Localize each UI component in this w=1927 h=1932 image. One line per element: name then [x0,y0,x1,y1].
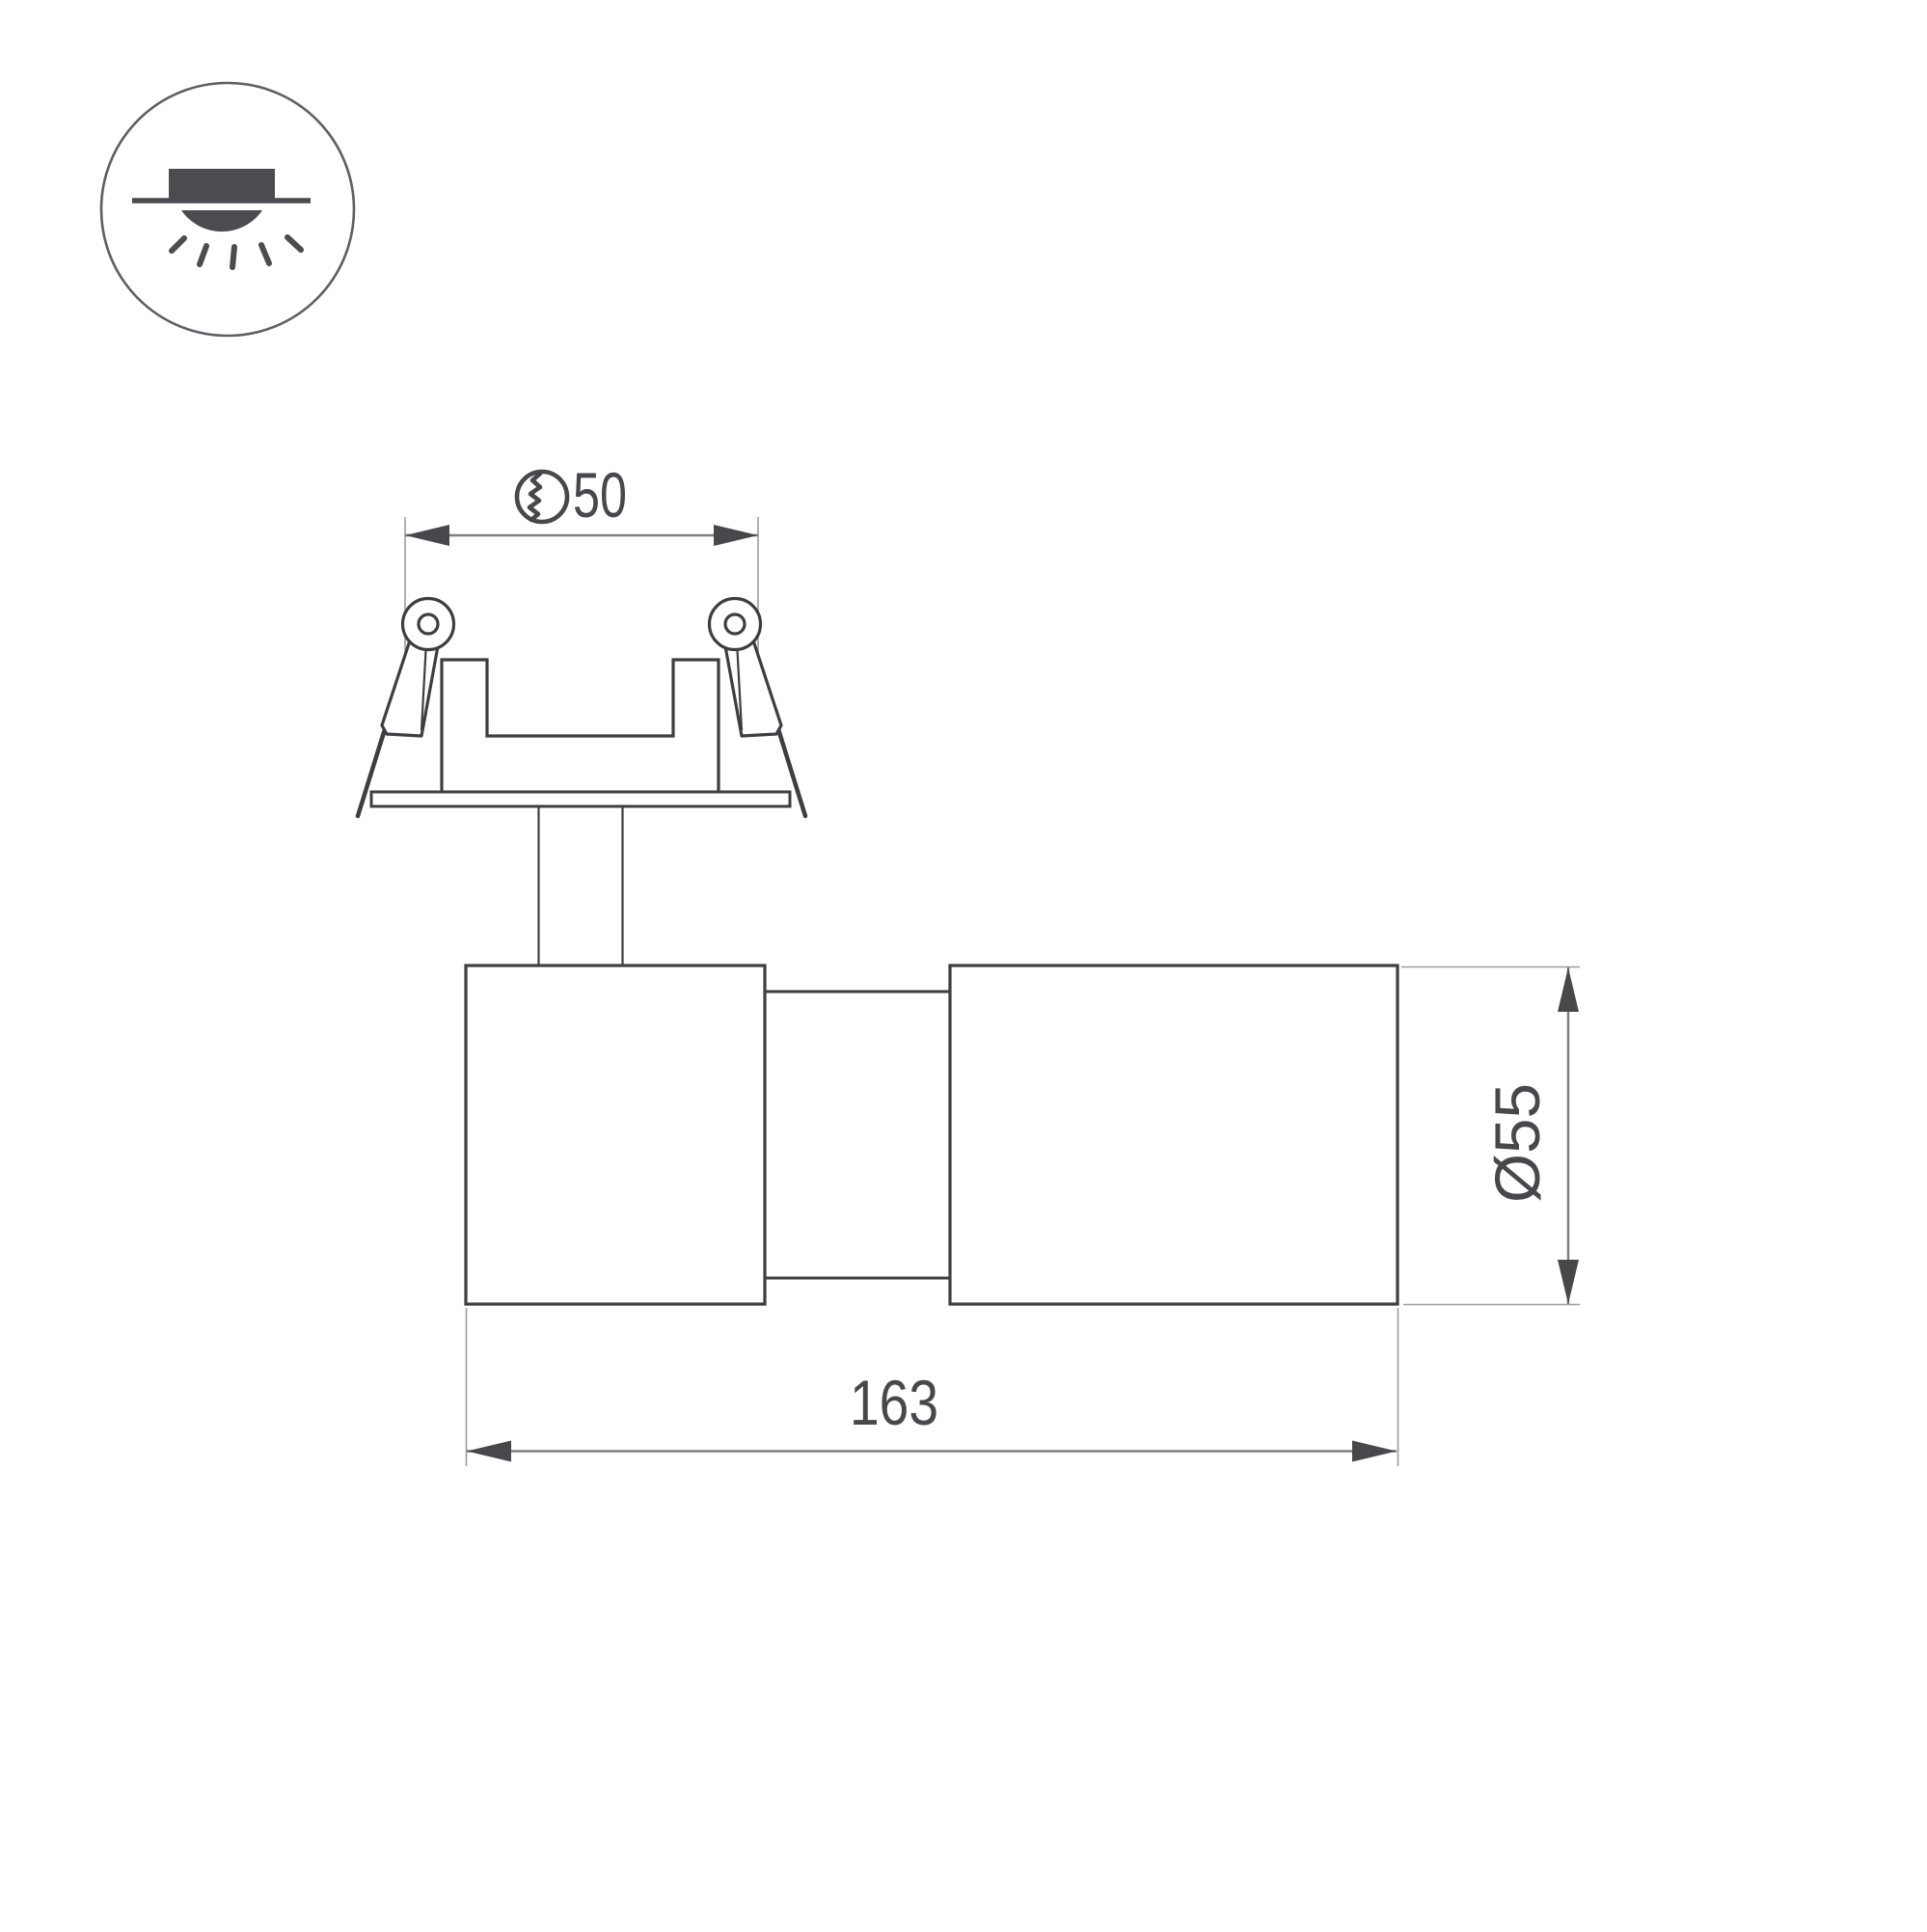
bracket-housing [442,660,719,794]
recessed-downlight-icon [101,83,354,336]
rear-cylinder-body [466,966,765,1304]
fixture-side-view [466,806,1398,1304]
drill-hole-diameter-symbol [517,472,567,522]
front-cylinder-head [950,966,1398,1304]
icon-recessed-housing [169,169,275,199]
arrow-left [405,525,449,546]
length-dimension: 163 [467,1308,1398,1466]
arrow-left [467,1441,511,1462]
diameter-dimension-value: Ø55 [1481,1083,1553,1203]
cutout-dimension-value: 50 [573,459,627,531]
arrow-right [1352,1441,1397,1462]
diameter-dimension: Ø55 [1401,967,1580,1305]
connector-joint-body [765,992,950,1278]
cutout-dimension: 50 [405,459,758,683]
arrow-right [714,525,758,546]
spring-clip-left [358,599,454,817]
spring-clip-right [710,599,806,817]
arrow-top [1558,967,1579,1012]
technical-drawing-page: 50 [0,0,1927,1927]
icon-circle-border [101,83,354,336]
arrow-bottom [1558,1260,1579,1304]
clip-pivot-head [710,599,761,650]
dimension-drawing-svg: 50 [0,0,1927,1927]
trim-ring-flange [371,792,790,806]
clip-pivot-head [403,599,454,650]
length-dimension-value: 163 [850,1367,938,1438]
mounting-bracket-cross-section [358,599,805,817]
